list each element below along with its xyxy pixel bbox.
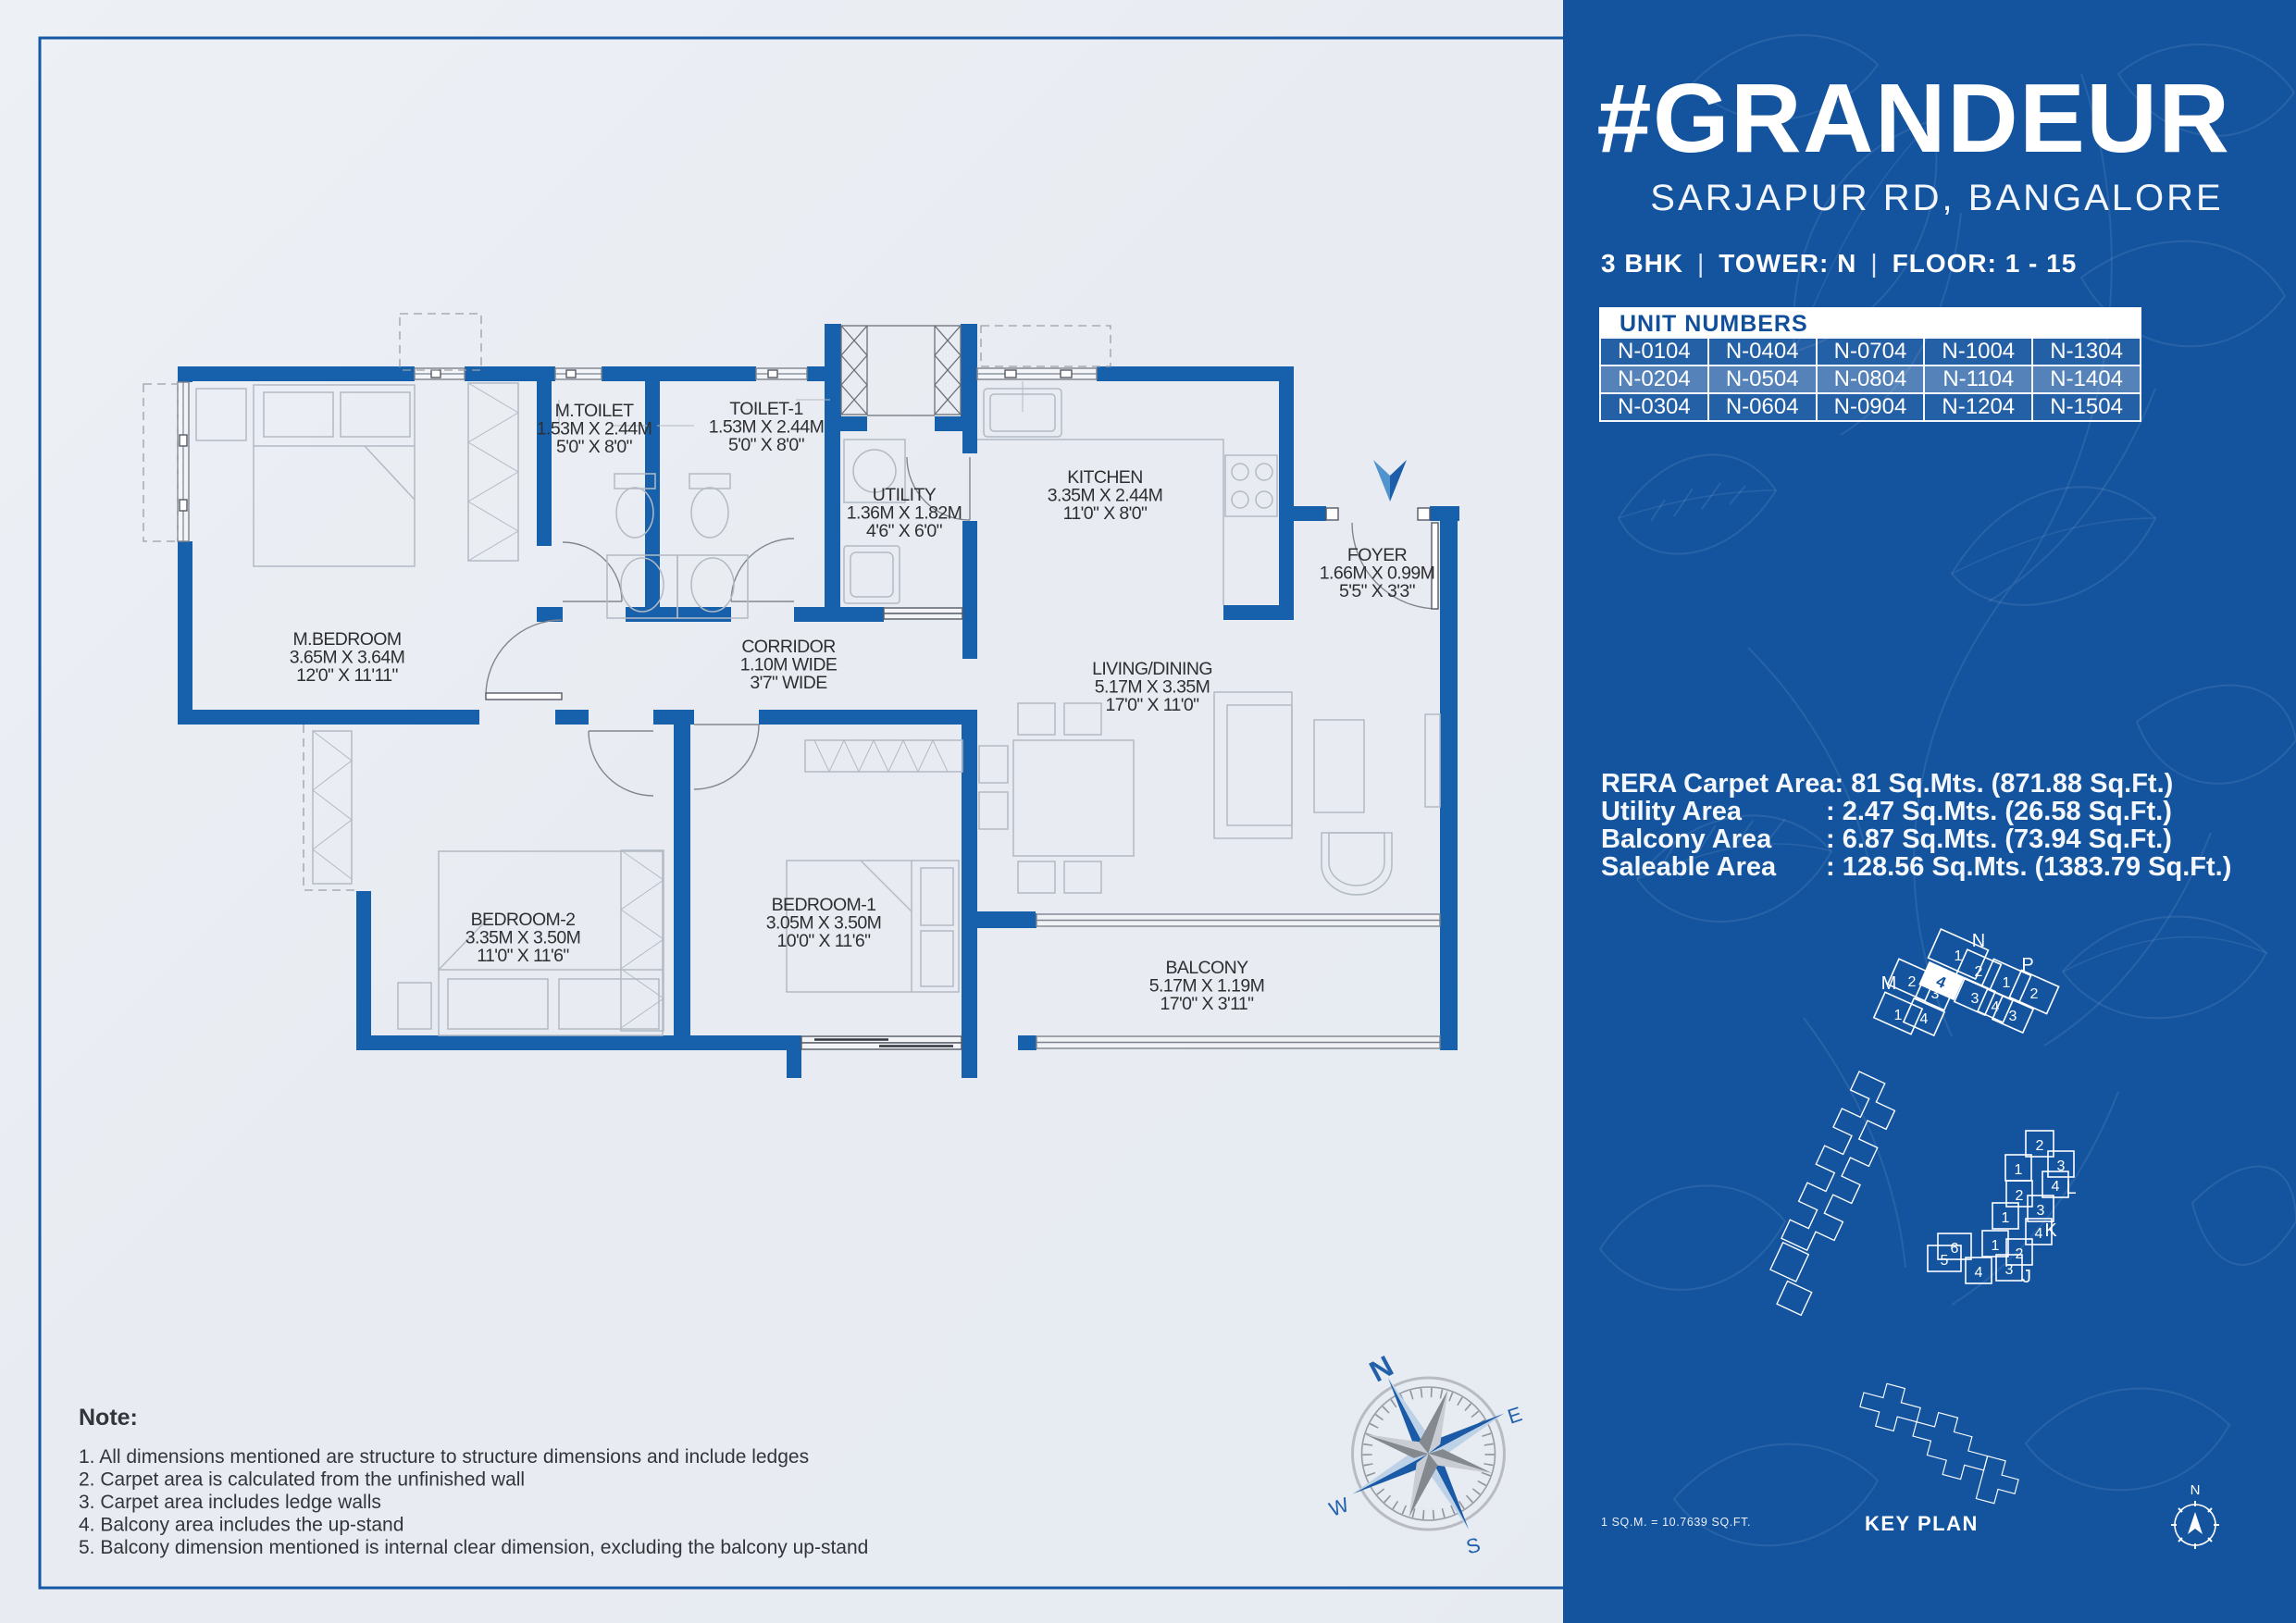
svg-text:P: P [2021,955,2033,975]
svg-text:1: 1 [1894,1008,1903,1023]
svg-text:2: 2 [2016,1246,2024,1262]
svg-text:2. Carpet area is calculated f: 2. Carpet area is calculated from the un… [79,1469,525,1491]
svg-text:5: 5 [1941,1253,1949,1269]
svg-text:Note:: Note: [79,1405,138,1431]
svg-text:L: L [2066,1178,2076,1198]
svg-text:2: 2 [2036,1138,2044,1154]
svg-text:3: 3 [2009,1009,2017,1024]
svg-text:11'0" X 8'0": 11'0" X 8'0" [1063,503,1148,524]
svg-text:S: S [1464,1533,1483,1559]
svg-text:5. Balcony dimension mentioned: 5. Balcony dimension mentioned is intern… [79,1537,868,1558]
svg-text:3'7" WIDE: 3'7" WIDE [750,673,827,693]
svg-text:3: 3 [1971,991,1980,1007]
svg-text:4: 4 [2035,1226,2043,1242]
svg-text:4: 4 [1975,1265,1983,1281]
svg-text:4. Balcony area includes the u: 4. Balcony area includes the up-stand [79,1515,403,1536]
svg-text:2: 2 [2030,986,2039,1002]
svg-text:1. All dimensions mentioned ar: 1. All dimensions mentioned are structur… [79,1446,809,1468]
svg-text:5'5" X 3'3": 5'5" X 3'3" [1339,581,1416,601]
svg-text:3: 3 [2057,1158,2066,1174]
svg-text:2: 2 [2016,1188,2024,1204]
svg-text:N: N [1972,931,1985,951]
svg-text:4: 4 [1920,1011,1929,1027]
svg-text:17'0" X 3'11": 17'0" X 3'11" [1160,994,1255,1014]
svg-text:K: K [2044,1220,2057,1241]
svg-text:1: 1 [1955,948,1963,964]
svg-text:5'0" X 8'0": 5'0" X 8'0" [556,437,633,457]
svg-text:N: N [2191,1482,2201,1498]
svg-text:12'0" X 11'11": 12'0" X 11'11" [296,665,398,686]
svg-text:1: 1 [2003,975,2011,991]
svg-text:1: 1 [1992,1238,2000,1254]
svg-text:5'0" X 8'0": 5'0" X 8'0" [728,435,805,455]
svg-text:2: 2 [1975,964,1983,980]
svg-text:1: 1 [2002,1210,2010,1226]
svg-text:W: W [1326,1493,1352,1521]
svg-text:E: E [1505,1402,1525,1428]
svg-text:4: 4 [1992,999,2000,1015]
svg-text:4: 4 [2052,1179,2060,1195]
svg-text:6: 6 [1951,1241,1959,1257]
svg-text:3. Carpet area includes ledge: 3. Carpet area includes ledge walls [79,1492,381,1513]
svg-text:1: 1 [2015,1162,2023,1178]
svg-text:4'6" X 6'0": 4'6" X 6'0" [866,521,943,541]
svg-text:17'0" X 11'0": 17'0" X 11'0" [1106,695,1200,715]
svg-text:3: 3 [2005,1262,2014,1278]
svg-text:M: M [1881,973,1897,994]
svg-text:10'0" X 11'6": 10'0" X 11'6" [777,931,872,951]
svg-text:11'0" X 11'6": 11'0" X 11'6" [477,946,569,966]
svg-text:J: J [2022,1267,2031,1287]
svg-text:N: N [1364,1349,1398,1389]
svg-text:3: 3 [2037,1203,2045,1219]
svg-text:2: 2 [1908,974,1917,990]
